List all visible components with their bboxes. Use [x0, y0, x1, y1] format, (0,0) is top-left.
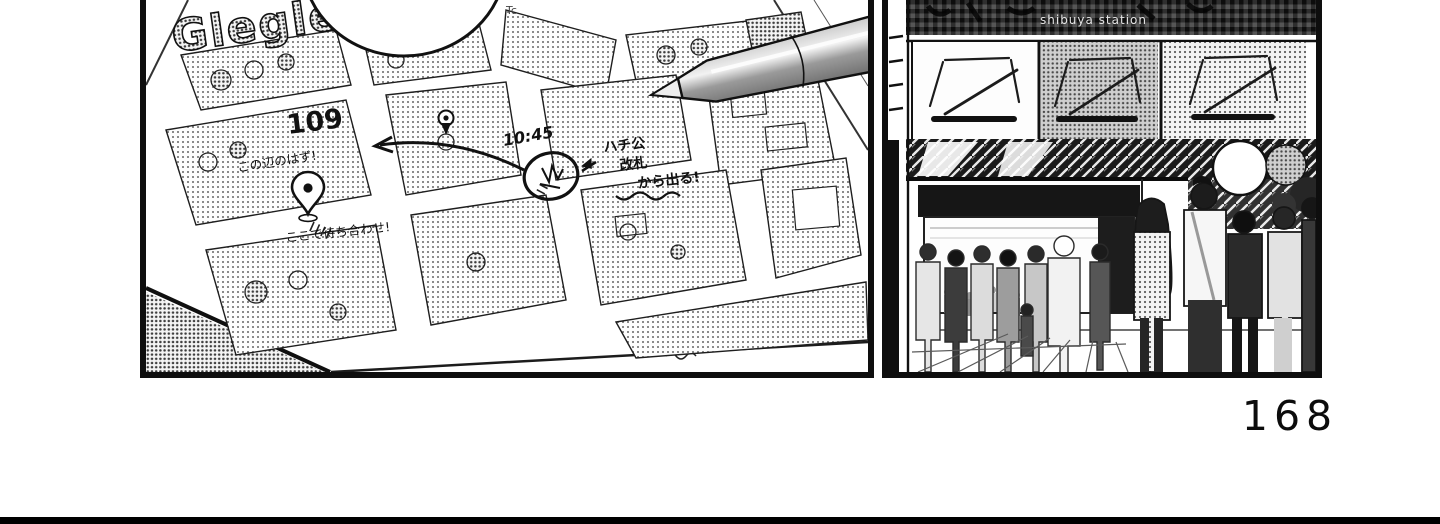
crowd-figure [945, 250, 967, 372]
crowd-figure [1090, 244, 1110, 370]
crowd-figure-woman [1134, 198, 1172, 372]
station-sign-text: shibuya station [1040, 13, 1147, 27]
crowd-figure [971, 246, 993, 372]
map-corner-label: Tc [505, 4, 517, 17]
svg-text:改札: 改札 [619, 154, 649, 174]
bottom-border-line [0, 517, 1440, 524]
left-column [888, 0, 908, 372]
panel-map: Glegle Tc 109 10:45 [140, 0, 874, 378]
map-drawing: Glegle Tc 109 10:45 [146, 0, 868, 372]
page-number: 168 [1232, 392, 1348, 440]
crowd-figure [997, 250, 1019, 372]
signage-strip: shibuya station [906, 0, 1316, 41]
manga-page: Glegle Tc 109 10:45 [0, 0, 1440, 524]
crowd-figure-backpack [1228, 211, 1262, 372]
station-scene: shibuya station [888, 0, 1316, 372]
display-windows [912, 42, 1306, 139]
map-pin-icon [292, 172, 324, 221]
panel-station: shibuya station [882, 0, 1322, 378]
crowd-figure [916, 244, 940, 372]
crowd-figure-hoodie [1268, 207, 1302, 372]
round-lamp [1213, 141, 1267, 195]
crowd-figure-edge [1302, 198, 1316, 372]
